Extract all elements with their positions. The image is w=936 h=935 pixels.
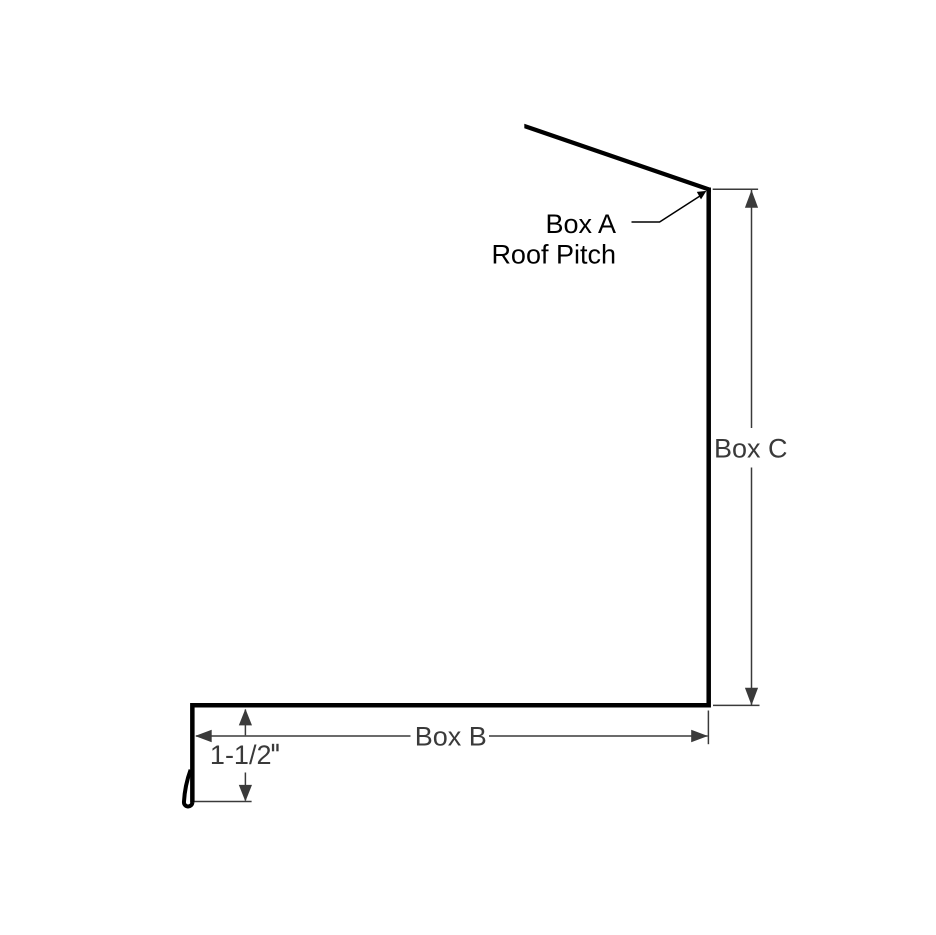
svg-text:Box C: Box C xyxy=(714,434,788,464)
svg-text:Box B: Box B xyxy=(415,722,487,752)
svg-text:1-1/2: 1-1/2 xyxy=(210,740,272,770)
svg-text:Roof Pitch: Roof Pitch xyxy=(491,240,616,270)
svg-text:Box A: Box A xyxy=(545,209,616,239)
